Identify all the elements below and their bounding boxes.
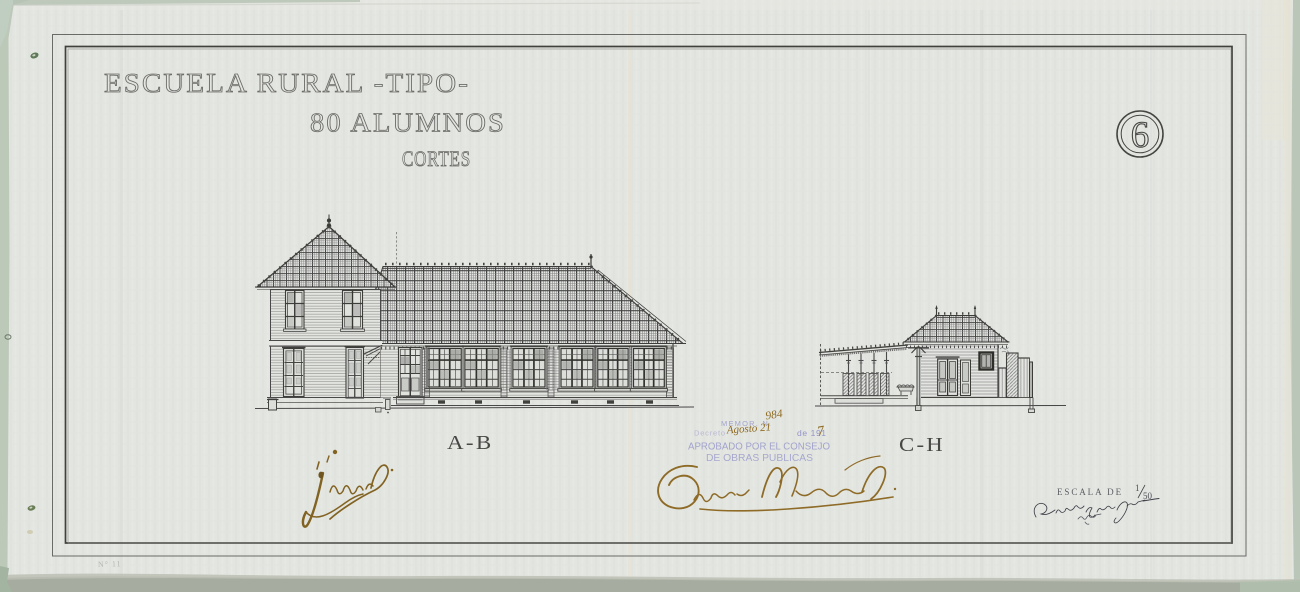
- svg-text:1: 1: [1135, 483, 1140, 493]
- svg-text:ESCUELA RURAL -TIPO-: ESCUELA RURAL -TIPO-: [104, 68, 470, 98]
- svg-text:A-B: A-B: [447, 432, 494, 454]
- svg-text:APROBADO POR EL CONSEJO: APROBADO POR EL CONSEJO: [688, 441, 830, 453]
- svg-text:ESCALA DE: ESCALA DE: [1057, 488, 1123, 498]
- svg-text:DE OBRAS PUBLICAS: DE OBRAS PUBLICAS: [706, 452, 813, 464]
- svg-text:CORTES: CORTES: [402, 146, 471, 171]
- svg-text:Decreto: Decreto: [694, 429, 726, 438]
- svg-text:N° 11: N° 11: [98, 559, 122, 569]
- svg-text:80 ALUMNOS: 80 ALUMNOS: [310, 108, 506, 138]
- svg-text:6: 6: [1131, 115, 1150, 156]
- svg-text:C-H: C-H: [899, 434, 945, 456]
